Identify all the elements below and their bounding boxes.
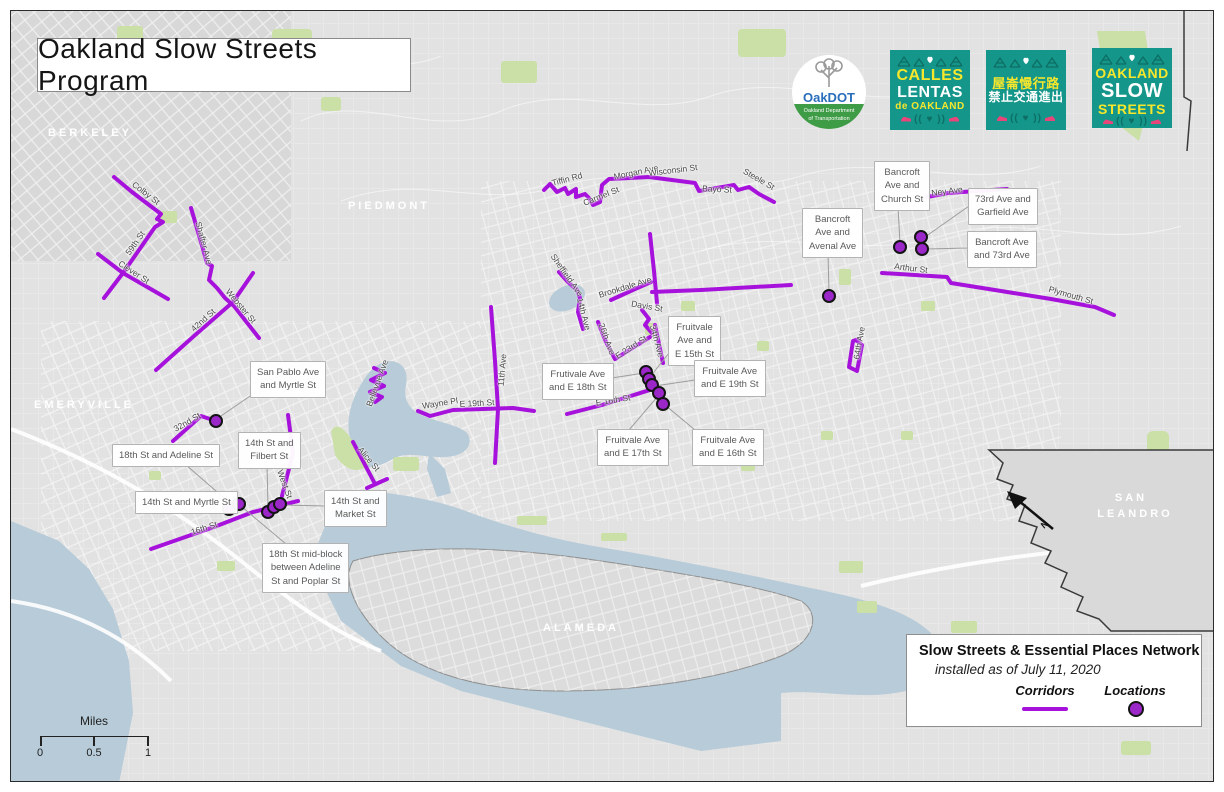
location-dot [657, 398, 669, 410]
grid-east-oakland [481, 181, 1061, 521]
location-dot [210, 415, 222, 427]
map-page: N BERKELEYPIEDMONTEMERYVILLEALAMEDASANLE… [0, 0, 1224, 792]
grid-berkeley [11, 11, 291, 261]
location-dot [233, 498, 245, 510]
map-svg: N [11, 11, 1214, 782]
location-dot [915, 231, 927, 243]
location-dot [916, 243, 928, 255]
location-dot [274, 498, 286, 510]
location-dot [823, 290, 835, 302]
map-canvas: N [10, 10, 1214, 782]
location-dot [894, 241, 906, 253]
